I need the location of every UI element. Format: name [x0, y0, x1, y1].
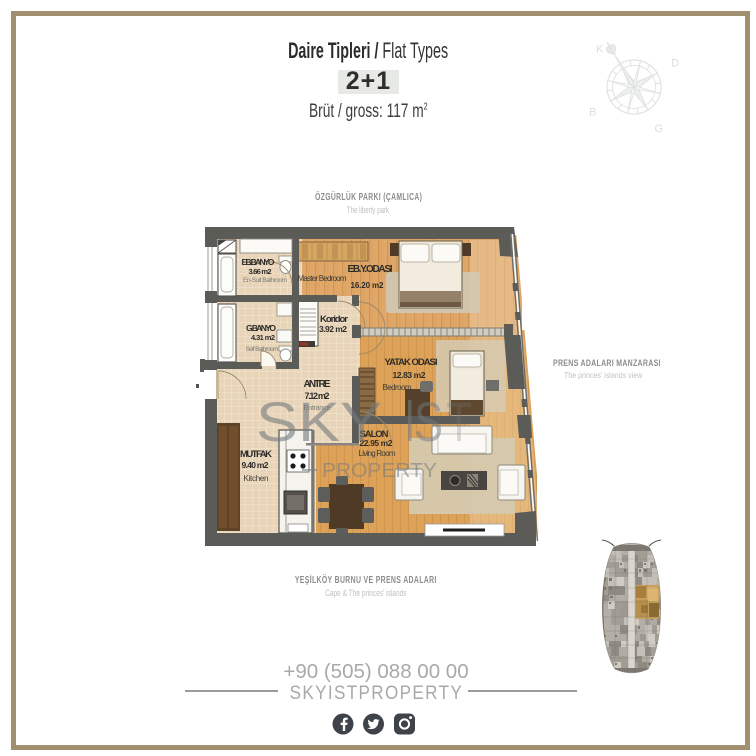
svg-text:Kitchen: Kitchen: [244, 474, 269, 483]
svg-text:EB.Y.ODASI: EB.Y.ODASI: [348, 264, 393, 275]
svg-text:EB.BANYO: EB.BANYO: [242, 257, 275, 267]
svg-text:ANTRE: ANTRE: [304, 379, 331, 390]
svg-text:Master Bedroom: Master Bedroom: [298, 274, 347, 283]
svg-text:En-Suit Bathroom: En-Suit Bathroom: [243, 277, 287, 284]
svg-text:SKY: SKY: [256, 390, 382, 453]
svg-text:4.31 m2: 4.31 m2: [251, 333, 275, 342]
svg-text:T: T: [446, 390, 472, 453]
svg-text:12.83 m2: 12.83 m2: [393, 370, 426, 380]
svg-text:3.92 m2: 3.92 m2: [319, 324, 347, 334]
svg-text:YATAK ODASI: YATAK ODASI: [385, 357, 438, 368]
svg-text:9.40 m2: 9.40 m2: [242, 460, 269, 470]
svg-text:PROPERTY: PROPERTY: [322, 460, 437, 482]
svg-text:3.66 m2: 3.66 m2: [249, 267, 272, 276]
svg-text:Self Bathroom: Self Bathroom: [246, 346, 279, 353]
svg-text:16.20 m2: 16.20 m2: [351, 281, 385, 290]
svg-text:S: S: [414, 390, 443, 453]
svg-text:G: G: [654, 123, 663, 135]
svg-text:G.BANYO: G.BANYO: [246, 323, 276, 333]
svg-text:Bedroom: Bedroom: [383, 383, 412, 392]
